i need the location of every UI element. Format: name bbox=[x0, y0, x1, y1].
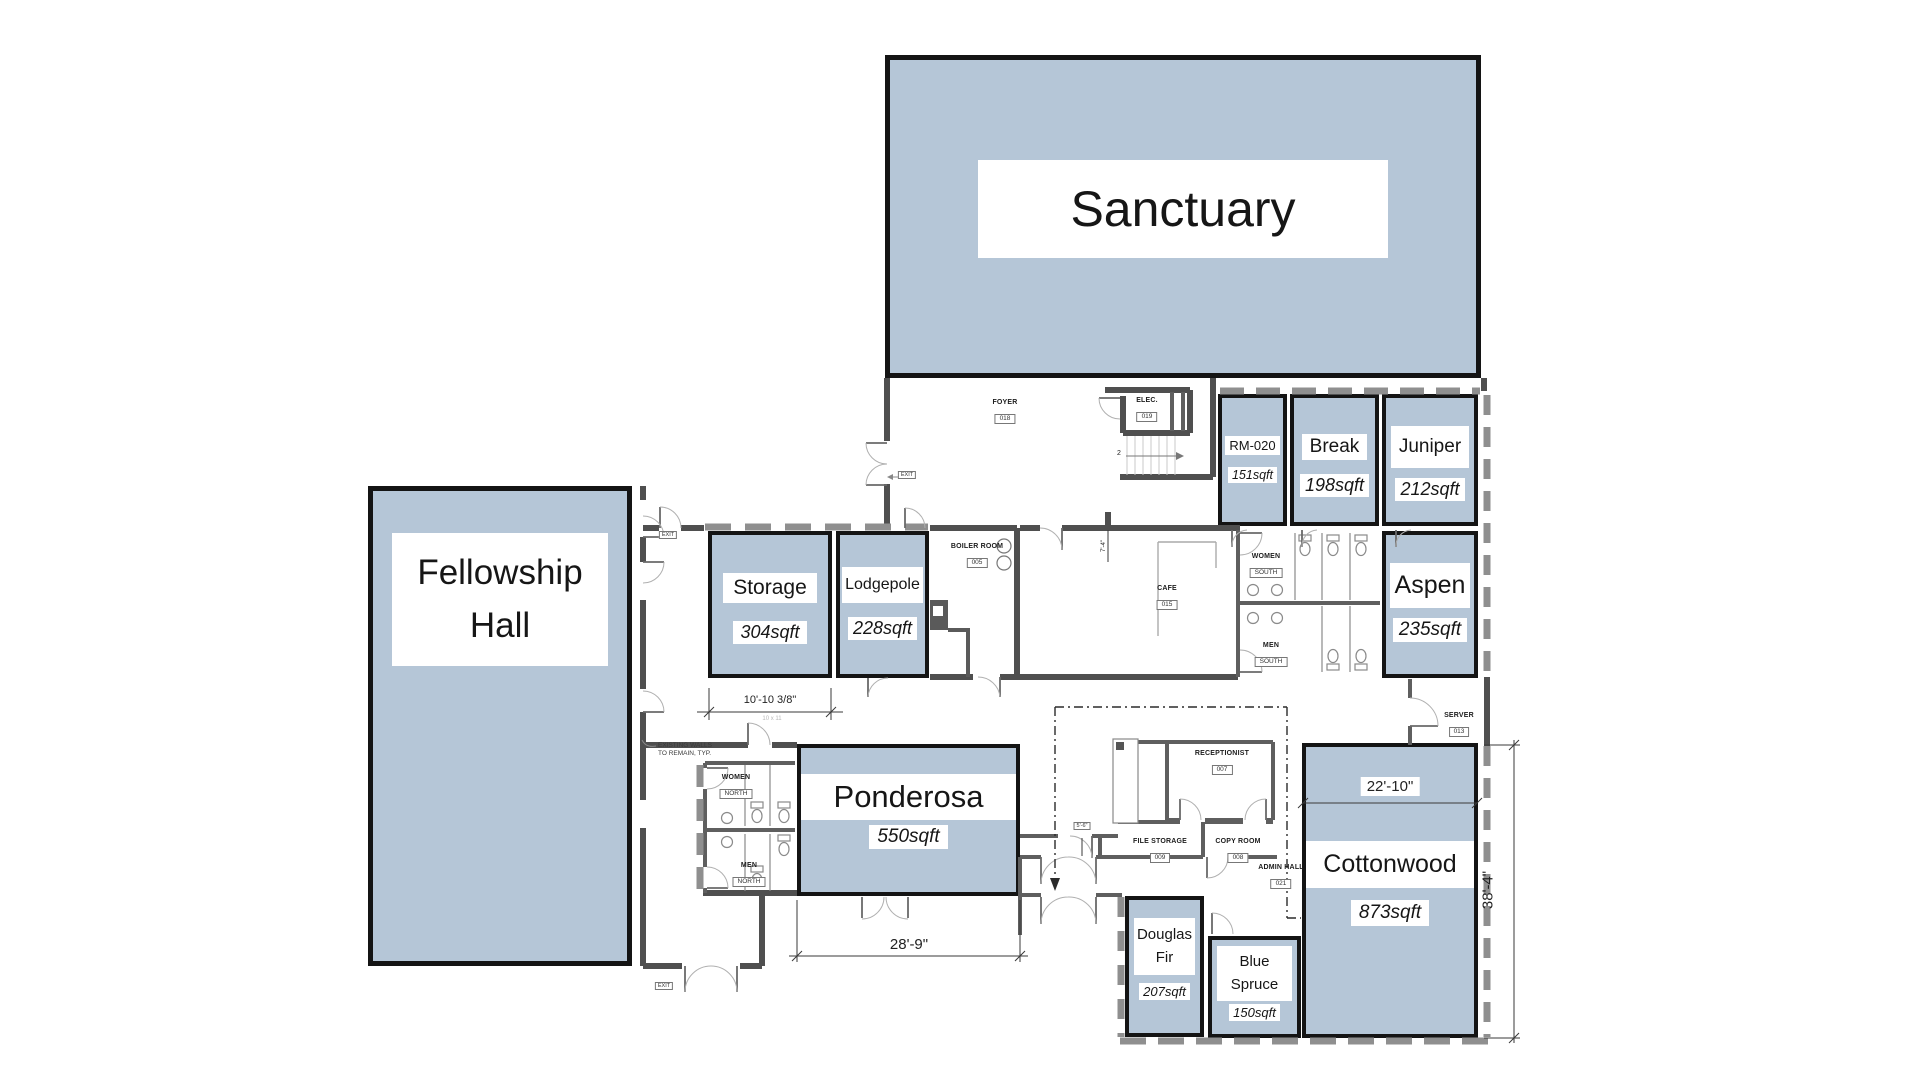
room-juniper: Juniper 212sqft bbox=[1382, 394, 1478, 526]
label-women-south: WOMEN SOUTH bbox=[1250, 553, 1283, 579]
stairs-icon bbox=[1126, 436, 1184, 475]
label-foyer: FOYER 018 bbox=[992, 399, 1017, 425]
room-sqft: 550sqft bbox=[869, 825, 947, 849]
room-sqft: 150sqft bbox=[1229, 1004, 1280, 1021]
room-name: Sanctuary bbox=[978, 160, 1388, 258]
room-number-chip: 007 bbox=[1212, 765, 1233, 774]
label-file-storage: FILE STORAGE 009 bbox=[1133, 838, 1187, 864]
cabinet bbox=[1113, 739, 1138, 823]
room-storage: Storage 304sqft bbox=[708, 531, 832, 678]
room-number-chip: 021 bbox=[1271, 879, 1292, 888]
room-aspen: Aspen 235sqft bbox=[1382, 531, 1478, 678]
room-name: Break bbox=[1302, 434, 1368, 460]
dim-storage-width: 10'-10 3/8" bbox=[744, 694, 797, 706]
stair-number: 2 bbox=[1117, 450, 1121, 457]
existing-walls-note: EXISTING WALLS TO REMAIN, TYP. bbox=[658, 742, 712, 759]
room-sqft: 198sqft bbox=[1300, 474, 1369, 497]
exit-tag: EXIT bbox=[659, 531, 677, 539]
label-boiler-room: BOILER ROOM 005 bbox=[951, 543, 1003, 569]
room-number-chip: 009 bbox=[1150, 853, 1171, 862]
room-ponderosa: Ponderosa 550sqft bbox=[797, 744, 1020, 896]
room-sqft: 228sqft bbox=[848, 617, 917, 640]
room-name: Storage bbox=[723, 573, 817, 603]
path-arrow-icon bbox=[1050, 878, 1060, 891]
dim-hall-width: 5'-6" bbox=[1074, 822, 1091, 830]
label-cafe: CAFE 015 bbox=[1157, 585, 1178, 611]
room-sqft: 207sqft bbox=[1139, 983, 1190, 1000]
room-name: Aspen bbox=[1390, 563, 1471, 608]
room-sqft: 873sqft bbox=[1351, 900, 1429, 926]
dim-ponderosa-width: 28'-9" bbox=[890, 936, 928, 953]
room-fellowship-hall: Fellowship Hall bbox=[368, 486, 632, 966]
room-name: Cottonwood bbox=[1306, 841, 1474, 888]
room-number-chip: NORTH bbox=[733, 877, 766, 886]
room-douglas-fir: Douglas Fir 207sqft bbox=[1125, 896, 1204, 1037]
label-copy-room: COPY ROOM 008 bbox=[1215, 838, 1260, 864]
label-women-north: WOMEN NORTH bbox=[720, 774, 753, 800]
room-name: Lodgepole bbox=[842, 567, 924, 603]
room-name: Blue Spruce bbox=[1217, 946, 1292, 1001]
room-break: Break 198sqft bbox=[1290, 394, 1379, 526]
dim-cottonwood-height: 38'-4" bbox=[1480, 871, 1497, 909]
room-sqft: 235sqft bbox=[1393, 618, 1467, 642]
dim-storage-width-sub: 10 x 11 bbox=[762, 716, 781, 722]
room-blue-spruce: Blue Spruce 150sqft bbox=[1208, 936, 1301, 1038]
room-number-chip: NORTH bbox=[720, 789, 753, 798]
label-men-south: MEN SOUTH bbox=[1255, 642, 1288, 668]
room-sqft: 304sqft bbox=[733, 621, 806, 644]
room-sanctuary: Sanctuary bbox=[885, 55, 1481, 378]
room-sqft: 212sqft bbox=[1395, 478, 1464, 501]
label-elec: ELEC. 019 bbox=[1136, 397, 1158, 423]
label-men-north: MEN NORTH bbox=[733, 862, 766, 888]
exit-tag: EXIT bbox=[655, 982, 673, 990]
dim-cottonwood-width: 22'-10" bbox=[1361, 777, 1420, 796]
room-number-chip: 015 bbox=[1157, 600, 1178, 609]
room-lodgepole: Lodgepole 228sqft bbox=[836, 531, 929, 678]
room-number-chip: SOUTH bbox=[1255, 657, 1288, 666]
room-name: Fellowship Hall bbox=[392, 533, 608, 666]
room-sqft: 151sqft bbox=[1228, 467, 1277, 483]
room-number-chip: 008 bbox=[1228, 853, 1249, 862]
room-number-chip: 019 bbox=[1137, 412, 1158, 421]
exit-arrow-icon bbox=[887, 474, 893, 480]
room-name: Ponderosa bbox=[801, 774, 1016, 820]
room-name: Juniper bbox=[1391, 426, 1468, 468]
label-server: SERVER 013 bbox=[1444, 712, 1474, 738]
room-number-chip: 018 bbox=[995, 414, 1016, 423]
room-rm-020: RM-020 151sqft bbox=[1218, 394, 1287, 526]
room-number-chip: 013 bbox=[1449, 727, 1470, 736]
exit-tag: EXIT bbox=[898, 471, 916, 479]
room-name: Douglas Fir bbox=[1134, 918, 1195, 975]
room-number-chip: 005 bbox=[967, 558, 988, 567]
label-receptionist: RECEPTIONIST 007 bbox=[1195, 750, 1249, 776]
dim-cafe-width: 7'-4" bbox=[1101, 540, 1107, 552]
floor-plan: Sanctuary Fellowship Hall Storage 304sqf… bbox=[0, 0, 1920, 1080]
room-name: RM-020 bbox=[1225, 436, 1279, 455]
room-number-chip: SOUTH bbox=[1250, 568, 1283, 577]
label-admin-hall: ADMIN HALL 021 bbox=[1258, 864, 1304, 890]
